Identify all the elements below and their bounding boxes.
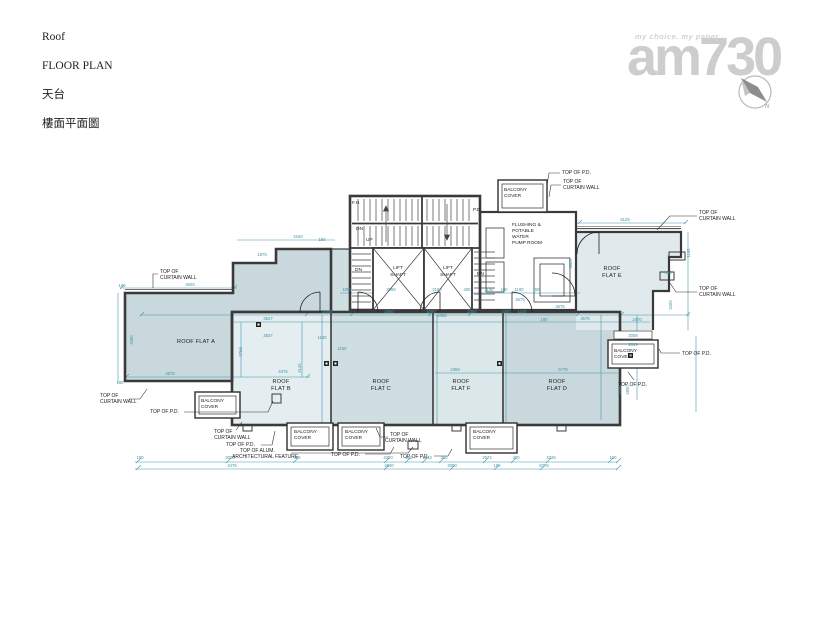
dimension-label: 4800 — [625, 385, 630, 395]
label-roof-flat-e: FLAT E — [602, 273, 622, 279]
dimension-label: 4475 — [227, 463, 237, 468]
bc-b3-2: COVER — [473, 435, 491, 441]
bc-left-1: BALCONY — [201, 398, 225, 404]
fill-corridor — [331, 249, 350, 312]
dimension-label: 4005 — [225, 455, 235, 460]
dimension-label: 3405 — [668, 300, 673, 310]
dimension-label: 1150 — [337, 346, 347, 351]
bc-right-1: BALCONY — [614, 348, 638, 354]
dimension-label: 4380 — [129, 335, 134, 345]
bc-b2-1: BALCONY — [345, 429, 369, 435]
label-lift-1b: SHAFT — [390, 272, 406, 278]
leader-tocw-6b: CURTAIN WALL — [214, 435, 251, 441]
dimension-label: 1100 — [517, 309, 527, 314]
label-dn-2: DN — [355, 267, 362, 273]
dimension-label: 2619 — [628, 342, 638, 347]
dimension-label: 4575 — [580, 316, 590, 321]
dimension-label: 5775 — [558, 367, 568, 372]
label-roof-flat-c: FLAT C — [371, 386, 391, 392]
label-roof-flat-f: FLAT F — [451, 386, 471, 392]
label-roof-e1: ROOF — [604, 266, 621, 272]
dimension-label: 3050 — [447, 463, 457, 468]
leader-tocw-2b: CURTAIN WALL — [563, 185, 600, 191]
dimension-label: 400 — [441, 455, 449, 460]
door-arc-pump — [552, 273, 575, 296]
leader-tocw-7b: CURTAIN WALL — [385, 438, 422, 444]
label-lift-2a: LIFT — [443, 265, 453, 271]
dimension-label: 1160 — [686, 248, 691, 258]
dimension-label: 2675 — [515, 297, 525, 302]
dimension-label: 100 — [541, 317, 549, 322]
leader-tocw-1b: CURTAIN WALL — [160, 275, 197, 281]
leader-topd-1: TOP OF P.D. — [562, 170, 591, 176]
dimension-label: 100 — [501, 287, 509, 292]
dimension-label: 2470 — [632, 317, 642, 322]
leader-tocw-4b: CURTAIN WALL — [699, 292, 736, 298]
dimension-label: 2050 — [386, 287, 396, 292]
label-pump-2: POTABLE — [512, 228, 534, 234]
dimension-label: 5775 — [539, 463, 549, 468]
label-roof-flat-a: ROOF FLAT A — [177, 339, 215, 345]
dimension-label: 2150 — [293, 234, 303, 239]
label-roof-f1: ROOF — [453, 379, 470, 385]
label-roof-c1: ROOF — [373, 379, 390, 385]
dimension-label: 150 — [319, 237, 327, 242]
dimension-label: 456 — [665, 270, 673, 275]
dimension-label: 150 — [406, 455, 414, 460]
label-up: UP — [366, 237, 373, 243]
dimension-label: 4475 — [278, 369, 288, 374]
label-roof-d1: ROOF — [549, 379, 566, 385]
bc-top-1: BALCONY — [504, 187, 528, 193]
dimension-label: 1150 — [317, 335, 327, 340]
dimension-label: 3825 — [568, 259, 573, 269]
dimension-label: 3450 — [384, 309, 394, 314]
dimension-label: 2150 — [432, 287, 442, 292]
label-fh: F.H. — [352, 200, 361, 206]
label-roof-b1: ROOF — [273, 379, 290, 385]
bc-b1-2: COVER — [294, 435, 312, 441]
label-pd: P.D. — [473, 207, 482, 213]
dimension-label: 400 — [294, 455, 302, 460]
roof-floor-plan: ROOF FLAT A ROOF FLAT B ROOF FLAT C ROOF… — [0, 0, 839, 631]
leader-topd-2: TOP OF P.D. — [682, 351, 711, 357]
label-pump-4: PUMP ROOM — [512, 240, 542, 246]
dimension-label: 2768 — [238, 347, 243, 357]
dimension-label: 1943 — [422, 455, 432, 460]
label-pump-3: WATER — [512, 234, 529, 240]
dimension-label: 3350 — [467, 309, 477, 314]
dimension-label: 150 — [533, 287, 541, 292]
bc-left-2: COVER — [201, 404, 219, 410]
dimension-label: 2008 — [628, 333, 638, 338]
bc-b2-2: COVER — [345, 435, 363, 441]
label-roof-flat-d: FLAT D — [547, 386, 567, 392]
dimension-label: 4675 — [165, 371, 175, 376]
dimension-label: 3405 — [617, 385, 622, 395]
bc-top-2: COVER — [504, 193, 522, 199]
label-pump-1: FLUSHING & — [512, 222, 542, 228]
label-lift-2b: SHAFT — [440, 272, 456, 278]
bc-right-2: COVER — [614, 354, 632, 360]
dimension-label: 150 — [117, 380, 125, 385]
dimension-label: 400 — [464, 287, 472, 292]
bc-b1-1: BALCONY — [294, 429, 318, 435]
leader-topd-6: TOP OF P.D. — [331, 452, 360, 458]
leader-alum-2: ARCHITECTURAL FEATURE — [232, 454, 299, 460]
dimension-label: 1000 — [501, 309, 511, 314]
dimension-label: 3527 — [263, 316, 273, 321]
dimension-label: 1000 — [426, 309, 436, 314]
dimension-label: 4145 — [297, 363, 302, 373]
dimension-label: 1050 — [342, 287, 352, 292]
lift-shafts — [373, 248, 472, 310]
dimension-label: 400 — [513, 455, 521, 460]
dimension-label: 4600 — [384, 463, 394, 468]
dimension-label: 100 — [494, 463, 502, 468]
leader-topd-3: TOP OF P.D. — [618, 382, 647, 388]
dimension-label: 150 — [119, 283, 127, 288]
dimension-label: 2088 — [322, 309, 332, 314]
label-lift-1a: LIFT — [393, 265, 403, 271]
leader-topd-4: TOP OF P.D. — [150, 409, 179, 415]
dimension-label: 1875 — [257, 252, 267, 257]
dimension-label: 4675 — [555, 304, 565, 309]
dimension-label: 1100 — [514, 287, 524, 292]
dimension-label: 2572 — [482, 455, 492, 460]
dimension-label: 2358 — [437, 313, 447, 318]
dimension-label: 4625 — [185, 282, 195, 287]
dimension-label: 150 — [610, 455, 618, 460]
fill-roof-flat-c — [331, 312, 433, 425]
dimension-label: 2358 — [450, 367, 460, 372]
dimension-label: 3537 — [263, 333, 273, 338]
dimension-label: 5125 — [620, 217, 630, 222]
dimension-label: 4300 — [383, 455, 393, 460]
leader-tocw-3b: CURTAIN WALL — [699, 216, 736, 222]
label-dn-1: DN — [356, 226, 363, 232]
fill-roof-flat-f — [433, 312, 503, 425]
leader-tocw-5b: CURTAIN WALL — [100, 399, 137, 405]
dimension-label: 1100 — [484, 287, 494, 292]
label-roof-flat-b: FLAT B — [271, 386, 291, 392]
bc-b3-1: BALCONY — [473, 429, 497, 435]
dimension-label: 150 — [137, 455, 145, 460]
dimension-label: 4325 — [546, 455, 556, 460]
label-dn-3: DN — [477, 271, 484, 277]
